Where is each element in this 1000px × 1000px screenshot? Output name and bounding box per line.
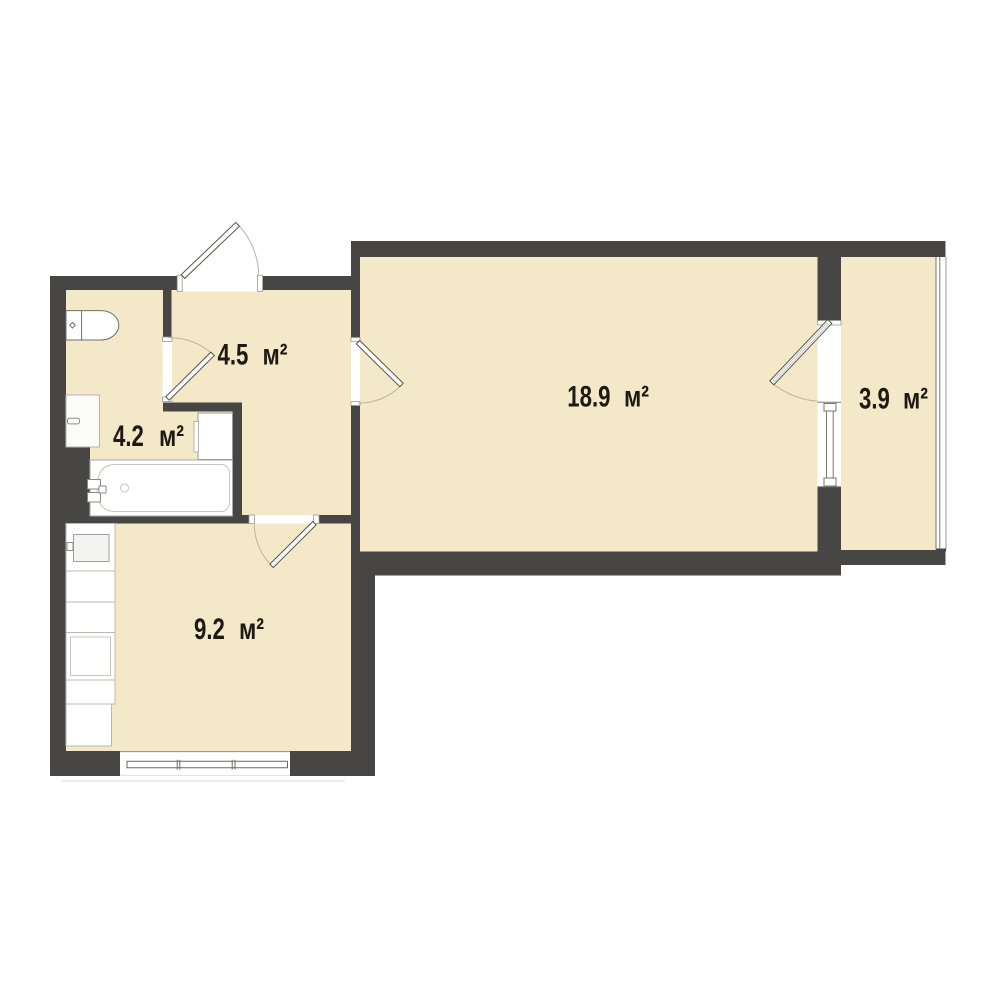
svg-text:4.2: 4.2 — [113, 419, 144, 453]
svg-text:м²: м² — [159, 419, 184, 452]
svg-text:м²: м² — [903, 382, 928, 415]
svg-text:18.9: 18.9 — [567, 379, 610, 413]
svg-text:м²: м² — [624, 380, 649, 413]
svg-text:м²: м² — [263, 338, 288, 371]
svg-text:м²: м² — [239, 612, 264, 645]
svg-text:3.9: 3.9 — [859, 381, 890, 415]
svg-text:4.5: 4.5 — [218, 337, 249, 371]
svg-text:9.2: 9.2 — [194, 612, 225, 646]
